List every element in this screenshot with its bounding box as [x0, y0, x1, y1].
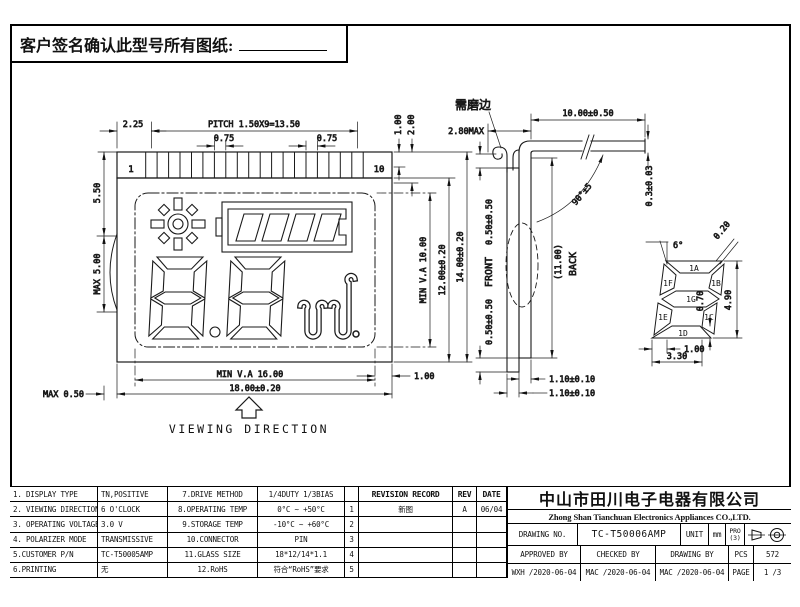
revision-row-num: 4	[345, 548, 359, 563]
pin-strip	[117, 152, 392, 178]
projection-symbol-cell	[745, 524, 791, 546]
unit-label: UNIT	[681, 524, 709, 546]
dim-280max: 2.80MAX	[448, 127, 485, 137]
revision-corner	[345, 487, 359, 502]
spec-value: 符合“RoHS”要求	[258, 563, 345, 578]
segment-detail-view: 1A 1F 1B 1G 1E 1C 1D	[652, 261, 724, 338]
dim-pitch: PITCH 1.50X9=13.50	[208, 120, 300, 130]
bent-pin-inner	[531, 151, 582, 153]
dim-550: 5.50	[93, 183, 103, 203]
customer-signature-box: 客户签名确认此型号所有图纸:	[10, 24, 348, 63]
dim-6deg: 6°	[673, 241, 683, 251]
page-label: PAGE	[729, 564, 754, 581]
spec-key: 7.DRIVE METHOD	[168, 487, 258, 502]
spec-value: 6 O'CLOCK	[98, 502, 168, 517]
dim-020: 0.20	[712, 220, 733, 242]
dim-050-top: 0.50±0.50	[485, 199, 495, 245]
signature-note: 客户签名确认此型号所有图纸:	[20, 32, 233, 56]
dim-490: 4.90	[724, 290, 734, 310]
revision-desc	[359, 548, 453, 563]
dim-100-top: 1.00	[394, 115, 404, 135]
revision-date-header: DATE	[477, 487, 507, 502]
segment-label-c: 1C	[704, 313, 714, 322]
revision-desc	[359, 563, 453, 578]
revision-table: REVISION RECORD REV DATE 1 新图 A 06/04 2 …	[345, 486, 507, 578]
battery-icon	[216, 202, 352, 252]
pin-bulge-profile	[110, 234, 117, 310]
dim-075-b: 0.75	[317, 134, 337, 144]
sun-icon	[151, 198, 205, 250]
spec-value: TC-T50005AMP	[98, 548, 168, 563]
segment-label-d: 1D	[678, 329, 688, 338]
dim-12: 12.00±0.20	[438, 244, 448, 295]
dim-330: 3.30	[667, 352, 687, 362]
signature-line[interactable]	[239, 36, 327, 51]
spec-key: 10.CONNECTOR	[168, 533, 258, 548]
spec-value: 1/4DUTY 1/3BIAS	[258, 487, 345, 502]
spec-value: 18*12/14*1.1	[258, 548, 345, 563]
segment-detail-dimensions: 6° 0.20 4.90 0.70 1.00 3.30	[639, 220, 742, 366]
segment-label-f: 1F	[663, 279, 673, 288]
spec-table: 1. DISPLAY TYPE TN,POSITIVE 7.DRIVE METH…	[10, 486, 345, 578]
spec-key: 2. VIEWING DIRECTION	[10, 502, 98, 517]
seven-seg-digits	[149, 257, 285, 339]
spec-value: TN,POSITIVE	[98, 487, 168, 502]
front-glass	[507, 168, 519, 372]
spec-key: 5.CUSTOMER P/N	[10, 548, 98, 563]
drawing-no-value: TC-T50006AMP	[578, 524, 681, 546]
company-name-en: Zhong Shan Tianchuan Electronics Applian…	[508, 510, 791, 524]
dim-90deg: 90°±5	[570, 182, 594, 208]
approved-by-value: WXH /2020-06-04	[508, 564, 581, 581]
page-value: 1 /3	[754, 564, 791, 581]
spec-key: 4. POLARIZER MODE	[10, 533, 98, 548]
dim-200-top: 2.00	[407, 115, 417, 135]
spec-key: 12.RoHS	[168, 563, 258, 578]
revision-date	[477, 548, 507, 563]
viewing-direction-label: VIEWING DIRECTION	[169, 422, 329, 436]
dim-max-050: MAX 0.50	[43, 390, 84, 400]
dim-min-va-16: MIN V.A 16.00	[217, 370, 284, 380]
dim-10-050: 10.00±0.50	[562, 109, 613, 119]
up-arrow-icon	[236, 397, 262, 418]
revision-desc	[359, 533, 453, 548]
revision-row-num: 5	[345, 563, 359, 578]
dim-18: 18.00±0.20	[229, 384, 280, 394]
pin-1-label: 1	[128, 165, 133, 175]
spec-value: 无	[98, 563, 168, 578]
revision-date	[477, 533, 507, 548]
spec-key: 11.GLASS SIZE	[168, 548, 258, 563]
glass-ellipse-mark	[506, 223, 538, 307]
dim-2-25: 2.25	[123, 120, 143, 130]
dim-070: 0.70	[696, 291, 706, 311]
revision-rev	[453, 533, 477, 548]
dim-050-bottom: 0.50±0.50	[485, 299, 495, 345]
revision-row-num: 1	[345, 502, 359, 517]
viewing-direction: VIEWING DIRECTION	[169, 397, 329, 436]
revision-rev	[453, 548, 477, 563]
spec-key: 6.PRINTING	[10, 563, 98, 578]
revision-rev: A	[453, 502, 477, 517]
segment-label-b: 1B	[711, 279, 721, 288]
dim-14: 14.00±0.20	[456, 231, 466, 282]
back-label: BACK	[568, 252, 579, 276]
segment-label-e: 1E	[658, 313, 668, 322]
pin-10-label: 10	[374, 165, 385, 175]
revision-title: REVISION RECORD	[359, 487, 453, 502]
dim-110-b: 1.10±0.10	[549, 389, 595, 399]
revision-date: 06/04	[477, 502, 507, 517]
spec-value: 3.0 V	[98, 517, 168, 532]
spec-key: 3. OPERATING VOLTAGE	[10, 517, 98, 532]
dim-03: 0.3±0.03	[645, 166, 655, 207]
revision-row-num: 3	[345, 533, 359, 548]
title-block: 中山市田川电子电器有限公司 Zhong Shan Tianchuan Elect…	[507, 486, 791, 578]
unit-value: mm	[709, 524, 726, 546]
spec-value: PIN	[258, 533, 345, 548]
revision-rev-header: REV	[453, 487, 477, 502]
revision-desc	[359, 517, 453, 532]
dim-11-ref: (11.00)	[554, 244, 564, 280]
revision-rev	[453, 517, 477, 532]
spec-key: 9.STORAGE TEMP	[168, 517, 258, 532]
third-angle-projection-icon	[746, 525, 790, 545]
dim-min-va-10: MIN V.A 10.00	[419, 237, 429, 304]
drawing-no-label: DRAWING NO.	[508, 524, 578, 546]
revision-rev	[453, 563, 477, 578]
drawing-by-value: MAC /2020-06-04	[656, 564, 729, 581]
spec-key: 8.OPERATING TEMP	[168, 502, 258, 517]
grind-edge-note: 需磨边	[455, 98, 491, 112]
spec-value: -10°C ~ +60°C	[258, 517, 345, 532]
unit-glyphs	[300, 276, 359, 337]
checked-by-value: MAC /2020-06-04	[581, 564, 656, 581]
decimal-point	[210, 327, 220, 337]
drawing-sheet: 2.25 PITCH 1.50X9=13.50 0.75 0.75 1 10 1…	[0, 0, 800, 607]
spec-key: 1. DISPLAY TYPE	[10, 487, 98, 502]
pro-sub-text: (3)	[729, 535, 740, 542]
company-name-cn: 中山市田川电子电器有限公司	[508, 487, 791, 510]
side-view-dimensions: 需磨边 2.80MAX 10.00±0.50 90°±5 0.3±0.03 0.…	[448, 98, 655, 399]
clip-hook-2	[513, 150, 519, 170]
pcs-value: 572	[754, 546, 791, 564]
pcs-label: PCS	[729, 546, 754, 564]
revision-date	[477, 563, 507, 578]
front-view	[110, 152, 392, 362]
dim-max-500: MAX 5.00	[93, 254, 103, 295]
pins-top	[146, 152, 363, 178]
segment-label-g: 1G	[686, 295, 696, 304]
spec-value: TRANSMISSIVE	[98, 533, 168, 548]
revision-row-num: 2	[345, 517, 359, 532]
revision-desc: 新图	[359, 502, 453, 517]
checked-by-label: CHECKED BY	[581, 546, 656, 564]
bent-pin-outer	[519, 141, 582, 152]
revision-date	[477, 517, 507, 532]
projection-label: PRO (3)	[726, 524, 745, 546]
drawing-by-label: DRAWING BY	[656, 546, 729, 564]
front-label: FRONT	[484, 257, 495, 287]
segment-label-a: 1A	[689, 264, 699, 273]
spec-value: 0°C ~ +50°C	[258, 502, 345, 517]
dim-075-a: 0.75	[214, 134, 234, 144]
dim-110-a: 1.10±0.10	[549, 375, 595, 385]
dim-100-right: 1.00	[414, 372, 434, 382]
approved-by-label: APPROVED BY	[508, 546, 581, 564]
